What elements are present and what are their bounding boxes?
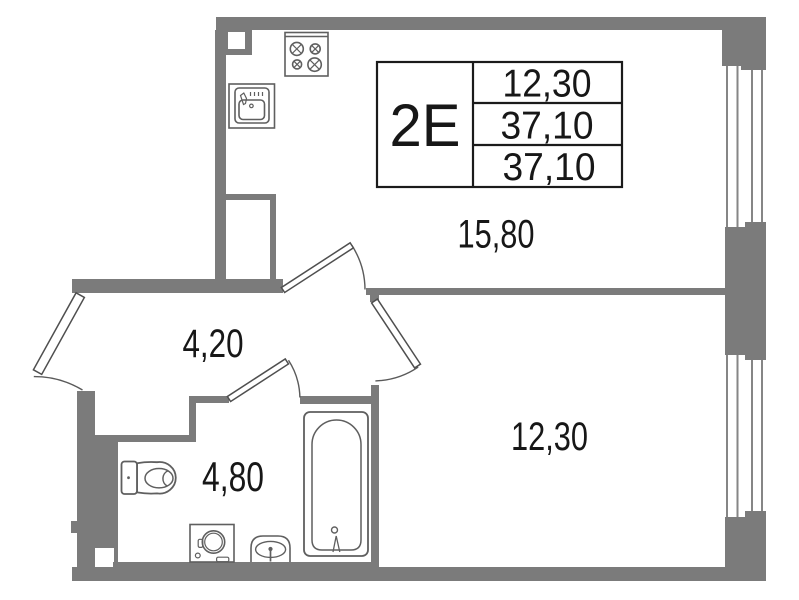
- svg-text:4,20: 4,20: [183, 322, 244, 366]
- svg-text:4,80: 4,80: [202, 453, 264, 500]
- svg-text:2E: 2E: [390, 92, 461, 159]
- svg-text:12,30: 12,30: [503, 63, 592, 106]
- svg-text:37,10: 37,10: [503, 146, 596, 189]
- svg-text:12,30: 12,30: [511, 415, 588, 459]
- svg-text:15,80: 15,80: [458, 213, 535, 257]
- svg-text:37,10: 37,10: [501, 105, 594, 148]
